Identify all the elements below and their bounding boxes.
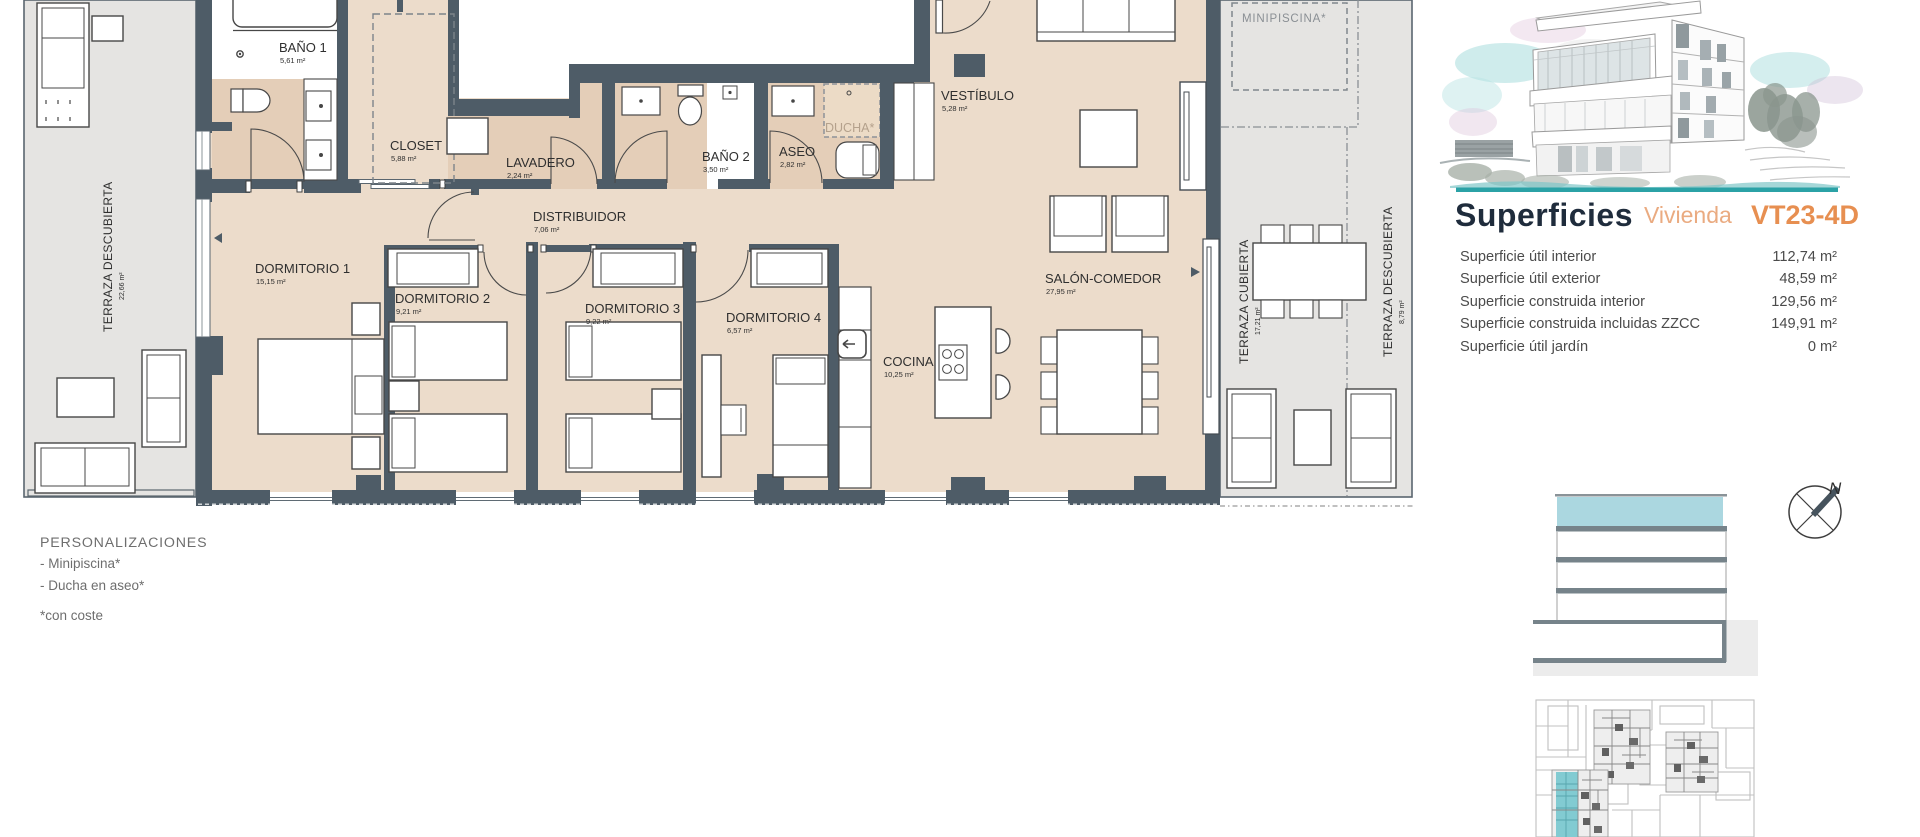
svg-text:0 m²: 0 m² xyxy=(1808,339,1837,355)
svg-text:9,22 m²: 9,22 m² xyxy=(586,317,612,326)
svg-text:5,28 m²: 5,28 m² xyxy=(942,104,968,113)
svg-text:N: N xyxy=(1829,479,1842,498)
svg-text:COCINA: COCINA xyxy=(883,354,934,369)
svg-text:Superficie construida interior: Superficie construida interior xyxy=(1460,294,1645,310)
svg-text:5,61 m²: 5,61 m² xyxy=(280,56,306,65)
svg-text:*con coste: *con coste xyxy=(40,608,103,623)
svg-text:BAÑO 1: BAÑO 1 xyxy=(279,40,327,55)
svg-text:Superficie útil jardín: Superficie útil jardín xyxy=(1460,339,1588,355)
svg-text:149,91 m²: 149,91 m² xyxy=(1771,316,1837,332)
svg-text:SALÓN-COMEDOR: SALÓN-COMEDOR xyxy=(1045,271,1161,286)
svg-text:ASEO: ASEO xyxy=(779,144,815,159)
svg-text:VESTÍBULO: VESTÍBULO xyxy=(941,88,1014,103)
svg-text:17,21 m²: 17,21 m² xyxy=(1255,307,1262,335)
svg-text:DUCHA*: DUCHA* xyxy=(825,121,874,135)
svg-text:Superficie útil interior: Superficie útil interior xyxy=(1460,249,1596,265)
svg-text:112,74 m²: 112,74 m² xyxy=(1772,249,1837,265)
svg-text:DISTRIBUIDOR: DISTRIBUIDOR xyxy=(533,209,626,224)
svg-text:7,06 m²: 7,06 m² xyxy=(534,225,560,234)
svg-text:48,59 m²: 48,59 m² xyxy=(1779,271,1837,287)
svg-text:Superficies: Superficies xyxy=(1455,197,1633,233)
svg-text:TERRAZA CUBIERTA: TERRAZA CUBIERTA xyxy=(1237,239,1251,364)
svg-text:9,21 m²: 9,21 m² xyxy=(396,307,422,316)
svg-text:LAVADERO: LAVADERO xyxy=(506,155,575,170)
svg-text:2,82 m²: 2,82 m² xyxy=(780,160,806,169)
svg-text:2,24 m²: 2,24 m² xyxy=(507,171,533,180)
svg-text:CLOSET: CLOSET xyxy=(390,138,442,153)
svg-text:Superficie construida incluida: Superficie construida incluidas ZZCC xyxy=(1460,316,1700,332)
svg-text:- Minipiscina*: - Minipiscina* xyxy=(40,556,121,571)
svg-text:22,66 m²: 22,66 m² xyxy=(119,272,126,300)
svg-text:Superficie útil exterior: Superficie útil exterior xyxy=(1460,271,1600,287)
svg-text:TERRAZA DESCUBIERTA: TERRAZA DESCUBIERTA xyxy=(1381,206,1395,357)
svg-text:PERSONALIZACIONES: PERSONALIZACIONES xyxy=(40,535,207,551)
svg-text:129,56 m²: 129,56 m² xyxy=(1771,294,1837,310)
svg-text:DORMITORIO 2: DORMITORIO 2 xyxy=(395,291,490,306)
svg-text:MINIPISCINA*: MINIPISCINA* xyxy=(1242,13,1326,25)
svg-text:VT23-4D: VT23-4D xyxy=(1751,200,1859,230)
svg-text:Vivienda: Vivienda xyxy=(1644,202,1732,228)
svg-text:15,15 m²: 15,15 m² xyxy=(256,277,286,286)
svg-text:TERRAZA DESCUBIERTA: TERRAZA DESCUBIERTA xyxy=(101,181,115,332)
svg-text:- Ducha en aseo*: - Ducha en aseo* xyxy=(40,578,145,593)
svg-text:BAÑO 2: BAÑO 2 xyxy=(702,149,750,164)
svg-text:5,88 m²: 5,88 m² xyxy=(391,154,417,163)
svg-text:DORMITORIO 1: DORMITORIO 1 xyxy=(255,261,350,276)
svg-text:DORMITORIO 3: DORMITORIO 3 xyxy=(585,301,680,316)
svg-text:DORMITORIO 4: DORMITORIO 4 xyxy=(726,310,821,325)
svg-text:6,57 m²: 6,57 m² xyxy=(727,326,753,335)
svg-text:27,95 m²: 27,95 m² xyxy=(1046,287,1076,296)
svg-text:8,79 m²: 8,79 m² xyxy=(1399,300,1406,324)
svg-text:3,50 m²: 3,50 m² xyxy=(703,165,729,174)
svg-text:10,25 m²: 10,25 m² xyxy=(884,370,914,379)
